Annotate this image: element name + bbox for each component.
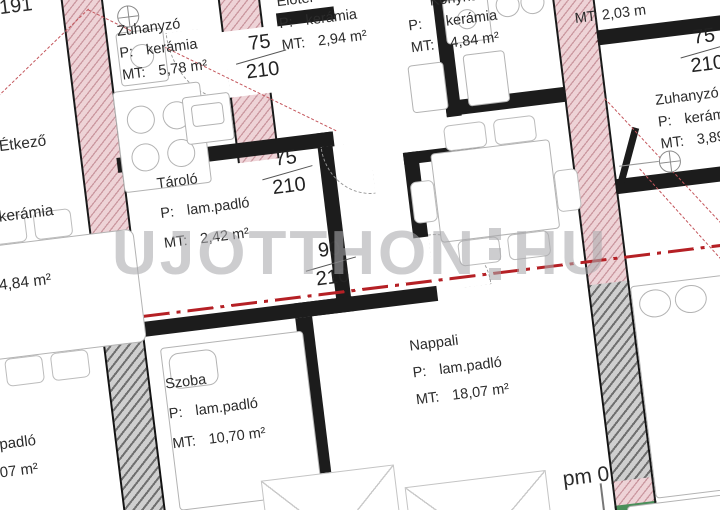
- chair-icon: [4, 355, 45, 387]
- appliance-icon: [462, 50, 510, 107]
- appliance-icon: [407, 61, 449, 113]
- pillow-icon: [638, 288, 673, 320]
- watermark: UJOTTHON HU: [112, 218, 609, 289]
- room-label-eloter: Előtér P:kerámia MT:2,94 m²: [275, 0, 368, 57]
- door-dimension-right: 75 210: [677, 22, 720, 79]
- door-leaf-right-unit: [618, 127, 639, 183]
- partial-label-area: 07 m²: [0, 460, 39, 482]
- watermark-dots-icon: [489, 228, 501, 280]
- watermark-text-left: UJOTTHON: [112, 218, 477, 289]
- room-label-szoba: Szoba P:lam.padló MT:10,70 m²: [164, 358, 268, 459]
- room-label-konyha: Konyha P:kerámia MT:4,84 m²: [404, 0, 501, 59]
- wardrobe-icon: [405, 470, 562, 510]
- room-label-nappali: Nappali P:lam.padló MT:18,07 m²: [408, 322, 511, 414]
- partial-label-floor: padló: [0, 432, 37, 453]
- burner-icon: [125, 104, 156, 135]
- door-dimension-tarolo: 75 210: [257, 144, 319, 202]
- floorplan-viewport: 191 Étkező kerámia 4,84 m² Zuhanyzó P:ke…: [0, 0, 720, 510]
- watermark-text-right: HU: [513, 218, 609, 289]
- burner-icon: [494, 0, 521, 19]
- level-marker: pm 0: [561, 462, 610, 492]
- room-label-etkezo-name: Étkező: [0, 132, 47, 156]
- washbasin-icon: [181, 92, 234, 145]
- room-label-zuhanyzo-left: Zuhanyzó P:kerámia MT:5,78 m²: [116, 11, 209, 87]
- chair-icon: [50, 349, 91, 381]
- level-marker-leader: [600, 483, 607, 510]
- room-label-zuhanyzo-right: Zuhanyzó P:kerámia MT:3,89 m²: [654, 80, 720, 156]
- chair-icon: [553, 168, 582, 213]
- burner-icon: [519, 0, 546, 15]
- corner-dimension: 191: [0, 0, 34, 20]
- pillow-icon: [673, 283, 708, 315]
- basin-bowl: [191, 102, 225, 128]
